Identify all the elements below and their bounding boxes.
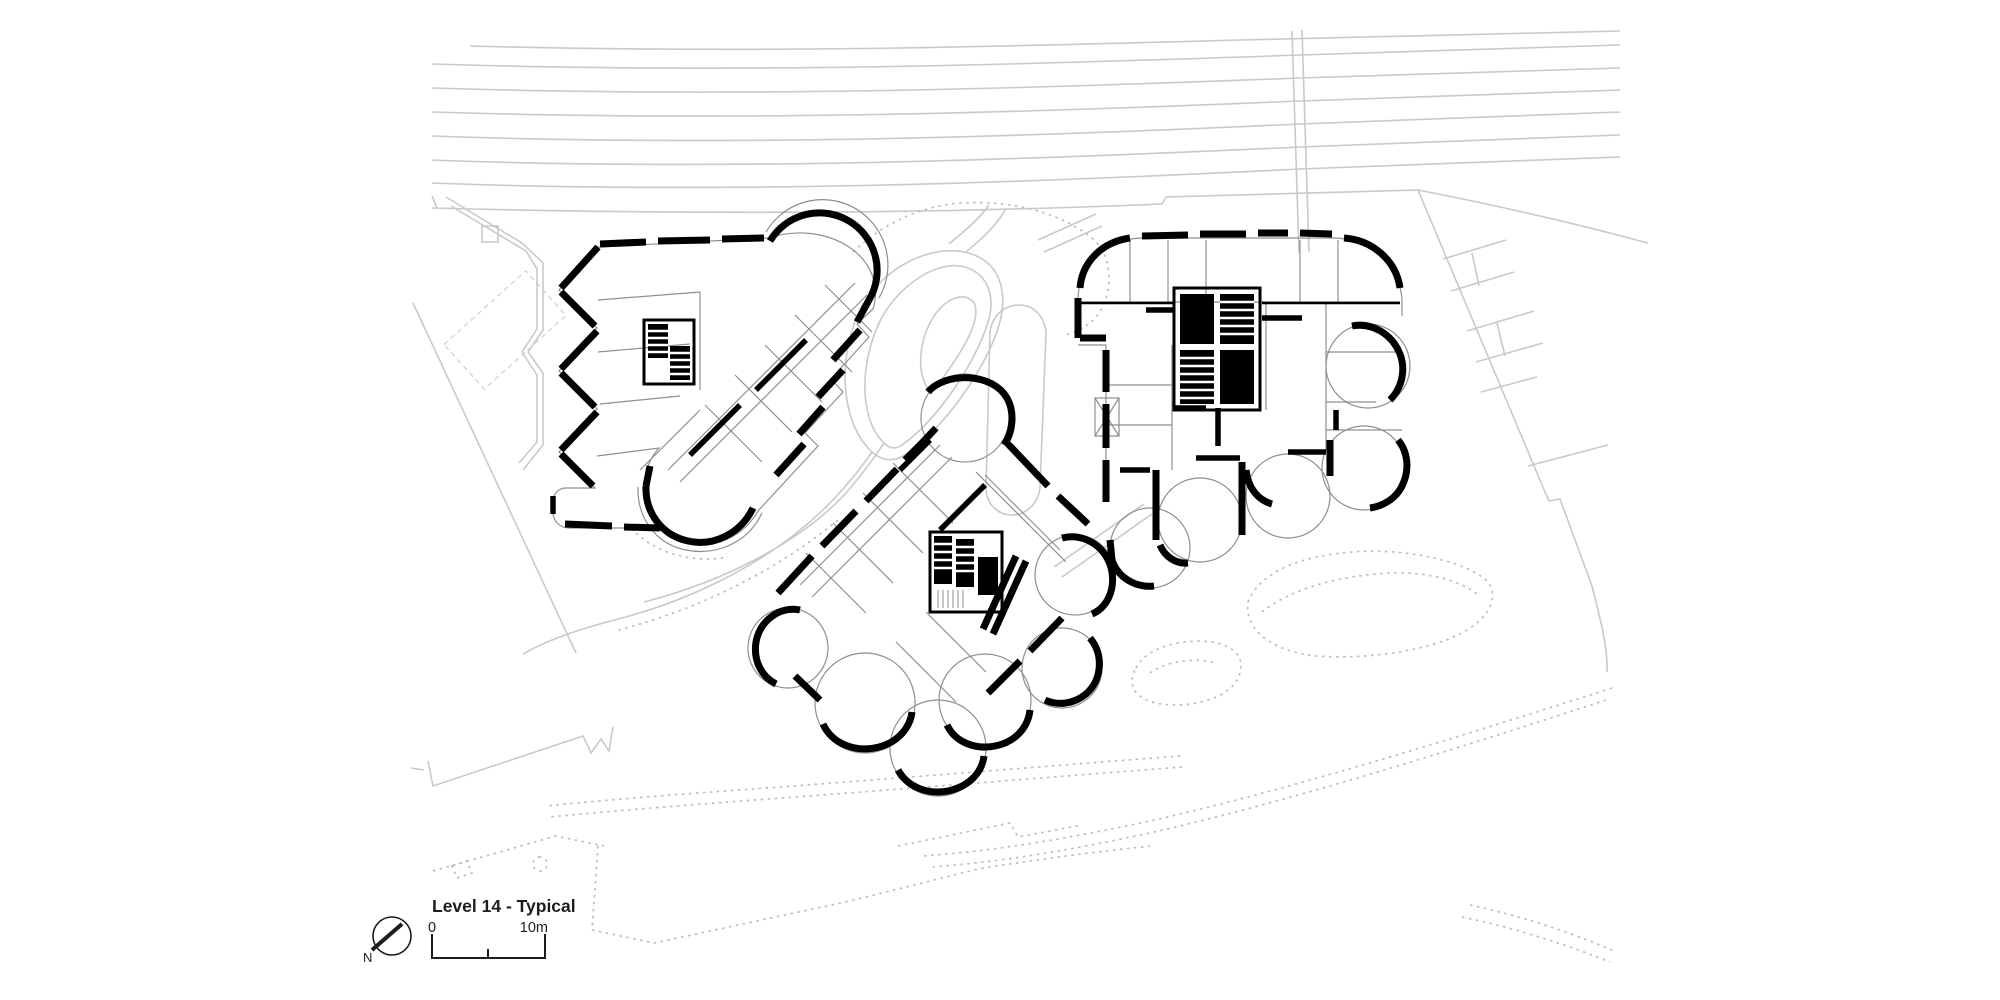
access-roads (523, 205, 1152, 654)
building-right-core (1174, 288, 1260, 410)
floor-plan-drawing: N Level 14 - Typical 0 10m (0, 0, 2000, 1000)
building-middle-inner-walls (900, 440, 985, 530)
southwest-corner (411, 727, 613, 786)
planting-blob-small (1132, 641, 1241, 705)
loop-road (845, 251, 1003, 460)
east-boundary (1418, 190, 1648, 672)
landscape-bits (452, 520, 838, 878)
west-boundary (413, 303, 576, 653)
landscape-path-mid (546, 756, 1182, 817)
scale-bar (432, 934, 545, 959)
north-label: N (363, 950, 372, 965)
railway-tracks (432, 30, 1620, 253)
tree-line-curve (853, 203, 1109, 335)
building-left-walls (561, 213, 877, 543)
building-middle-core (930, 532, 1002, 612)
railway-line (432, 31, 1620, 187)
footbridges (1038, 214, 1152, 577)
floor-plan-sheet: N Level 14 - Typical 0 10m (0, 0, 2000, 1000)
railway-crossing-lines (1292, 30, 1309, 253)
scale-start-label: 0 (428, 920, 436, 936)
landscape-dotted (433, 203, 1616, 962)
north-arrow-icon (372, 917, 411, 955)
building-middle-walls (755, 378, 1112, 792)
building-left (553, 200, 888, 552)
landscape-path-upper (922, 688, 1612, 867)
west-terrace-structure (446, 197, 543, 470)
title-block: N Level 14 - Typical 0 10m (363, 896, 576, 965)
landscape-corner-southeast (1462, 905, 1616, 962)
terrace-dashed-deck (444, 271, 566, 389)
building-left-core (644, 320, 694, 384)
building-middle (748, 374, 1115, 796)
building-right (1078, 233, 1410, 588)
scale-end-label: 10m (520, 920, 548, 936)
planting-blob-large (1248, 551, 1493, 657)
building-middle-partitions (800, 445, 1066, 702)
drawing-title: Level 14 - Typical (432, 896, 576, 916)
site-boundary (411, 190, 1648, 786)
